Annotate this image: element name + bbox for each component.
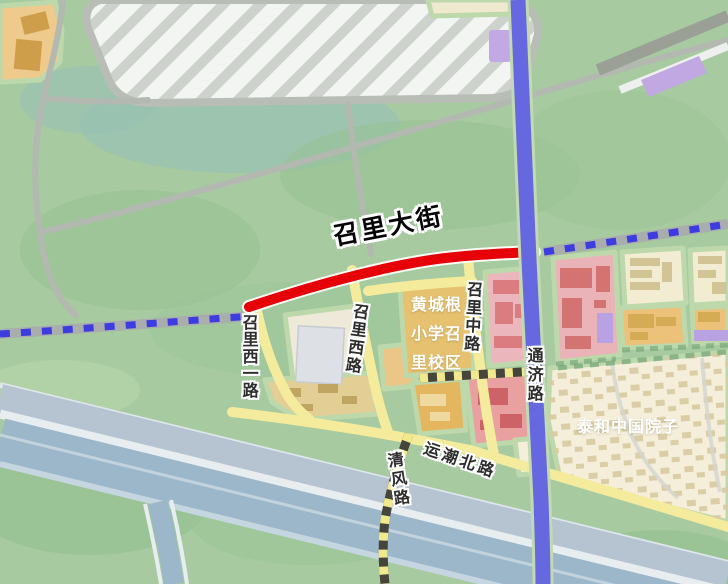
planning-map: 召里大街 召里西一路 召里西路 召里中路 通济路 运潮北路 清风路 黄城根小学召… bbox=[0, 0, 728, 584]
label-zhaoli-west1-road: 召里西一路 bbox=[239, 314, 257, 399]
label-taihe-residence: 泰和中国院子 bbox=[577, 419, 679, 437]
label-school: 黄城根小学召里校区 bbox=[411, 291, 465, 378]
label-tongji-road: 通济路 bbox=[524, 347, 542, 404]
map-canvas bbox=[0, 0, 728, 584]
